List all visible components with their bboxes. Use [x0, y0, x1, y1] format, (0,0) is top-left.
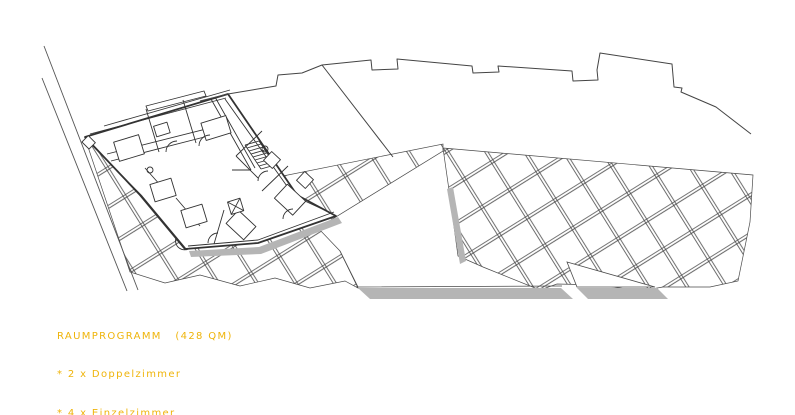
- inner-edge-line: [322, 65, 393, 157]
- room-programme-legend: RAUMPROGRAMM (428 QM) * 2 x Doppelzimmer…: [57, 305, 233, 415]
- legend-item: * 2 x Doppelzimmer: [57, 369, 233, 382]
- site-plan-page: RAUMPROGRAMM (428 QM) * 2 x Doppelzimmer…: [0, 0, 795, 415]
- slab-shadow-right: [577, 288, 668, 299]
- legend-heading: RAUMPROGRAMM (428 QM): [57, 331, 233, 344]
- castellated-building-outline: [200, 53, 751, 157]
- slab-shadow-left: [358, 288, 573, 299]
- paved-tile-terrace-right: [443, 148, 753, 291]
- legend-item: * 4 x Einzelzimmer: [57, 408, 233, 415]
